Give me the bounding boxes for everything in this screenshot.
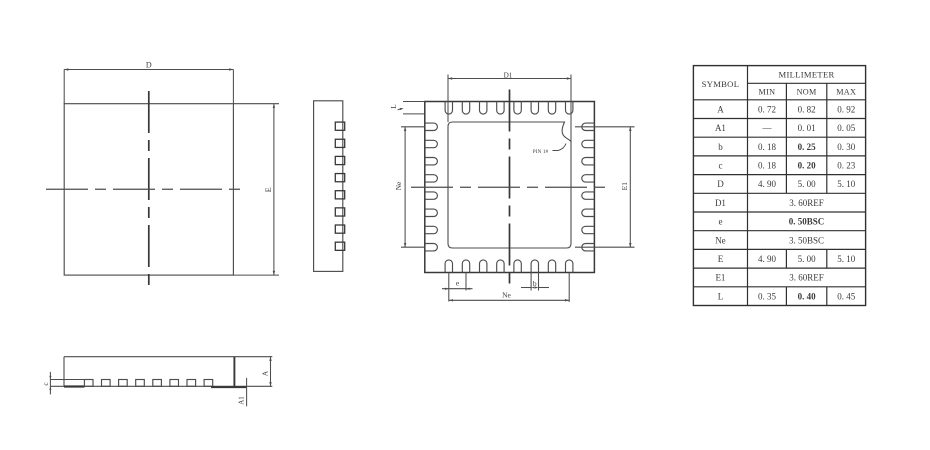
- svg-text:NOM: NOM: [797, 88, 817, 97]
- svg-text:PIN 1#: PIN 1#: [533, 149, 549, 155]
- svg-text:A1: A1: [238, 396, 246, 405]
- svg-text:E1: E1: [620, 182, 629, 191]
- svg-text:E: E: [264, 187, 273, 192]
- svg-text:c: c: [41, 382, 50, 386]
- svg-text:0. 50BSC: 0. 50BSC: [789, 217, 825, 227]
- svg-text:4. 90: 4. 90: [758, 179, 777, 189]
- svg-text:0. 01: 0. 01: [798, 123, 816, 133]
- svg-text:5. 00: 5. 00: [798, 254, 817, 264]
- svg-text:D1: D1: [715, 198, 726, 208]
- svg-text:MILLIMETER: MILLIMETER: [779, 70, 835, 80]
- svg-text:E: E: [718, 254, 724, 264]
- svg-text:0. 05: 0. 05: [837, 123, 856, 133]
- svg-text:0. 92: 0. 92: [837, 104, 855, 114]
- svg-text:0. 82: 0. 82: [798, 104, 816, 114]
- svg-text:0. 18: 0. 18: [758, 142, 777, 152]
- svg-text:3. 60REF: 3. 60REF: [789, 198, 824, 208]
- svg-text:D: D: [146, 61, 152, 70]
- svg-text:Ne: Ne: [715, 235, 726, 245]
- svg-text:b: b: [533, 279, 537, 288]
- svg-text:b: b: [718, 142, 723, 152]
- svg-text:SYMBOL: SYMBOL: [702, 79, 740, 89]
- svg-text:e: e: [718, 217, 722, 227]
- svg-text:MAX: MAX: [836, 88, 856, 97]
- svg-text:—: —: [761, 123, 772, 133]
- svg-text:c: c: [718, 160, 722, 170]
- svg-text:0. 20: 0. 20: [798, 160, 817, 170]
- svg-text:0. 40: 0. 40: [798, 291, 817, 301]
- svg-text:5. 00: 5. 00: [798, 179, 817, 189]
- svg-text:0. 72: 0. 72: [758, 104, 776, 114]
- svg-text:0. 45: 0. 45: [837, 291, 856, 301]
- svg-text:Ne: Ne: [502, 290, 511, 299]
- svg-text:0. 25: 0. 25: [798, 142, 817, 152]
- svg-text:3. 50BSC: 3. 50BSC: [789, 235, 824, 245]
- svg-text:D1: D1: [504, 71, 513, 79]
- svg-text:MIN: MIN: [759, 88, 776, 97]
- svg-text:0. 18: 0. 18: [758, 160, 777, 170]
- svg-text:A: A: [717, 104, 724, 114]
- svg-text:0. 35: 0. 35: [758, 291, 777, 301]
- svg-text:5. 10: 5. 10: [837, 254, 856, 264]
- svg-text:L: L: [390, 104, 398, 108]
- svg-text:0. 23: 0. 23: [837, 160, 856, 170]
- svg-text:D: D: [717, 179, 724, 189]
- svg-text:0. 30: 0. 30: [837, 142, 856, 152]
- svg-text:3. 60REF: 3. 60REF: [789, 273, 824, 283]
- svg-text:A1: A1: [715, 123, 726, 133]
- svg-text:4. 90: 4. 90: [758, 254, 777, 264]
- svg-text:e: e: [456, 279, 460, 288]
- svg-text:L: L: [718, 291, 724, 301]
- svg-text:Ne: Ne: [394, 181, 403, 190]
- svg-text:5. 10: 5. 10: [837, 179, 856, 189]
- svg-text:E1: E1: [715, 273, 725, 283]
- svg-text:A: A: [261, 370, 270, 376]
